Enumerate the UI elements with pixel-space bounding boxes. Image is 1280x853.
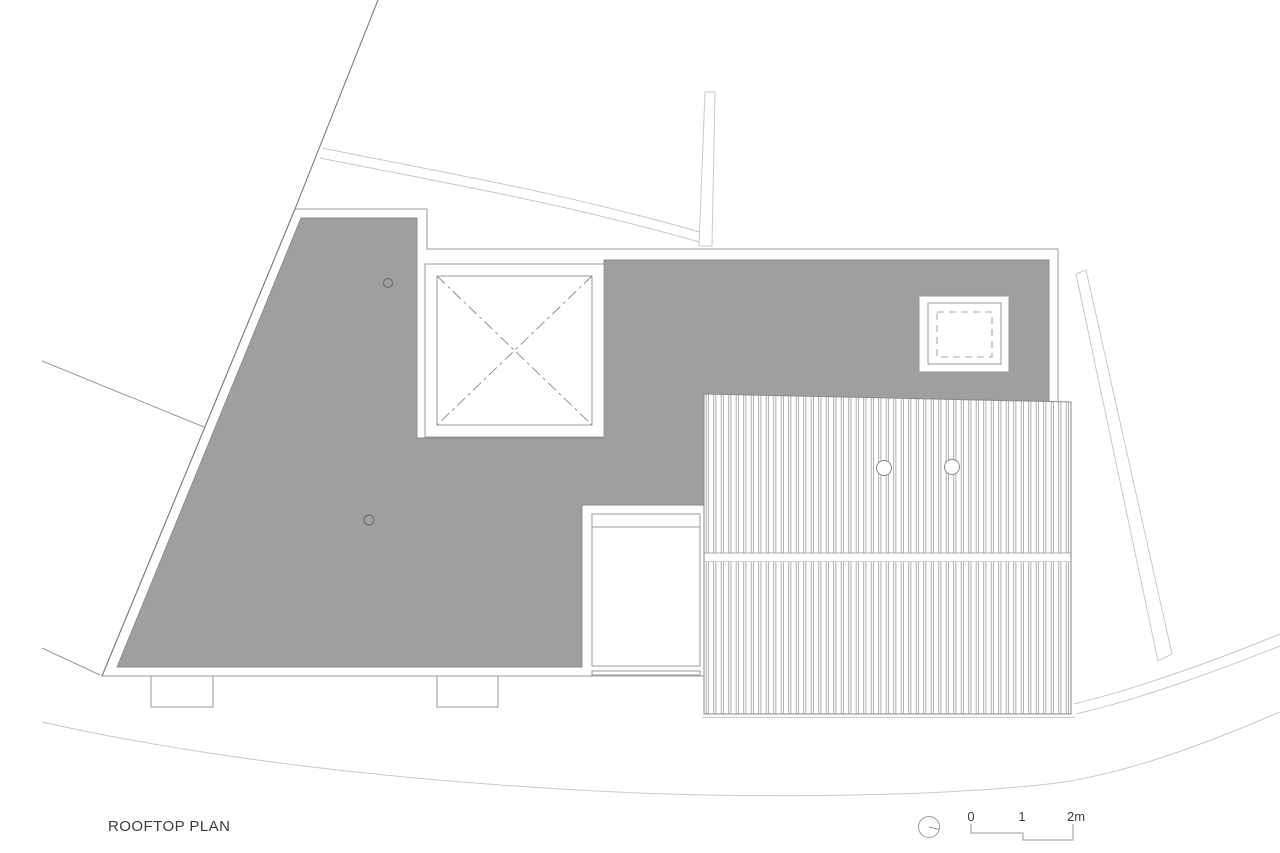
ground-contour-line [42, 712, 1280, 796]
road-edge-upper-right [1074, 634, 1280, 704]
road-edge-lower-right [1076, 646, 1280, 714]
scale-bar: 0 1 2m [967, 809, 1085, 840]
site-line-left-upper [42, 361, 204, 427]
scale-bar-line [971, 824, 1073, 840]
ribbed-roof-ridge-band [704, 553, 1071, 562]
roof-vent-icon [877, 461, 892, 476]
ribbed-roof [702, 394, 1075, 718]
plan-svg: ROOFTOP PLAN 0 1 2m [0, 0, 1280, 853]
rooftop-plan-drawing: ROOFTOP PLAN 0 1 2m [0, 0, 1280, 853]
footing-block [437, 676, 498, 707]
skylight-opening [425, 264, 604, 437]
orientation-symbol [919, 817, 940, 838]
drawing-title: ROOFTOP PLAN [108, 818, 230, 835]
hatch-opening [919, 296, 1009, 372]
site-wall-sliver-right [1076, 270, 1172, 661]
ribbed-roof-lower-seams [704, 562, 1071, 714]
footing-block [151, 676, 213, 707]
roof-vent-icon [945, 460, 960, 475]
north-needle-icon [929, 827, 940, 830]
site-line-left-lower [42, 648, 100, 675]
scale-label-1: 1 [1018, 809, 1025, 824]
scale-label-2m: 2m [1067, 809, 1085, 824]
small-skylight [919, 296, 1009, 372]
large-skylight [425, 264, 604, 437]
site-wall-strip-top [699, 92, 715, 246]
scale-label-0: 0 [967, 809, 974, 824]
courtyard-threshold [592, 671, 700, 675]
